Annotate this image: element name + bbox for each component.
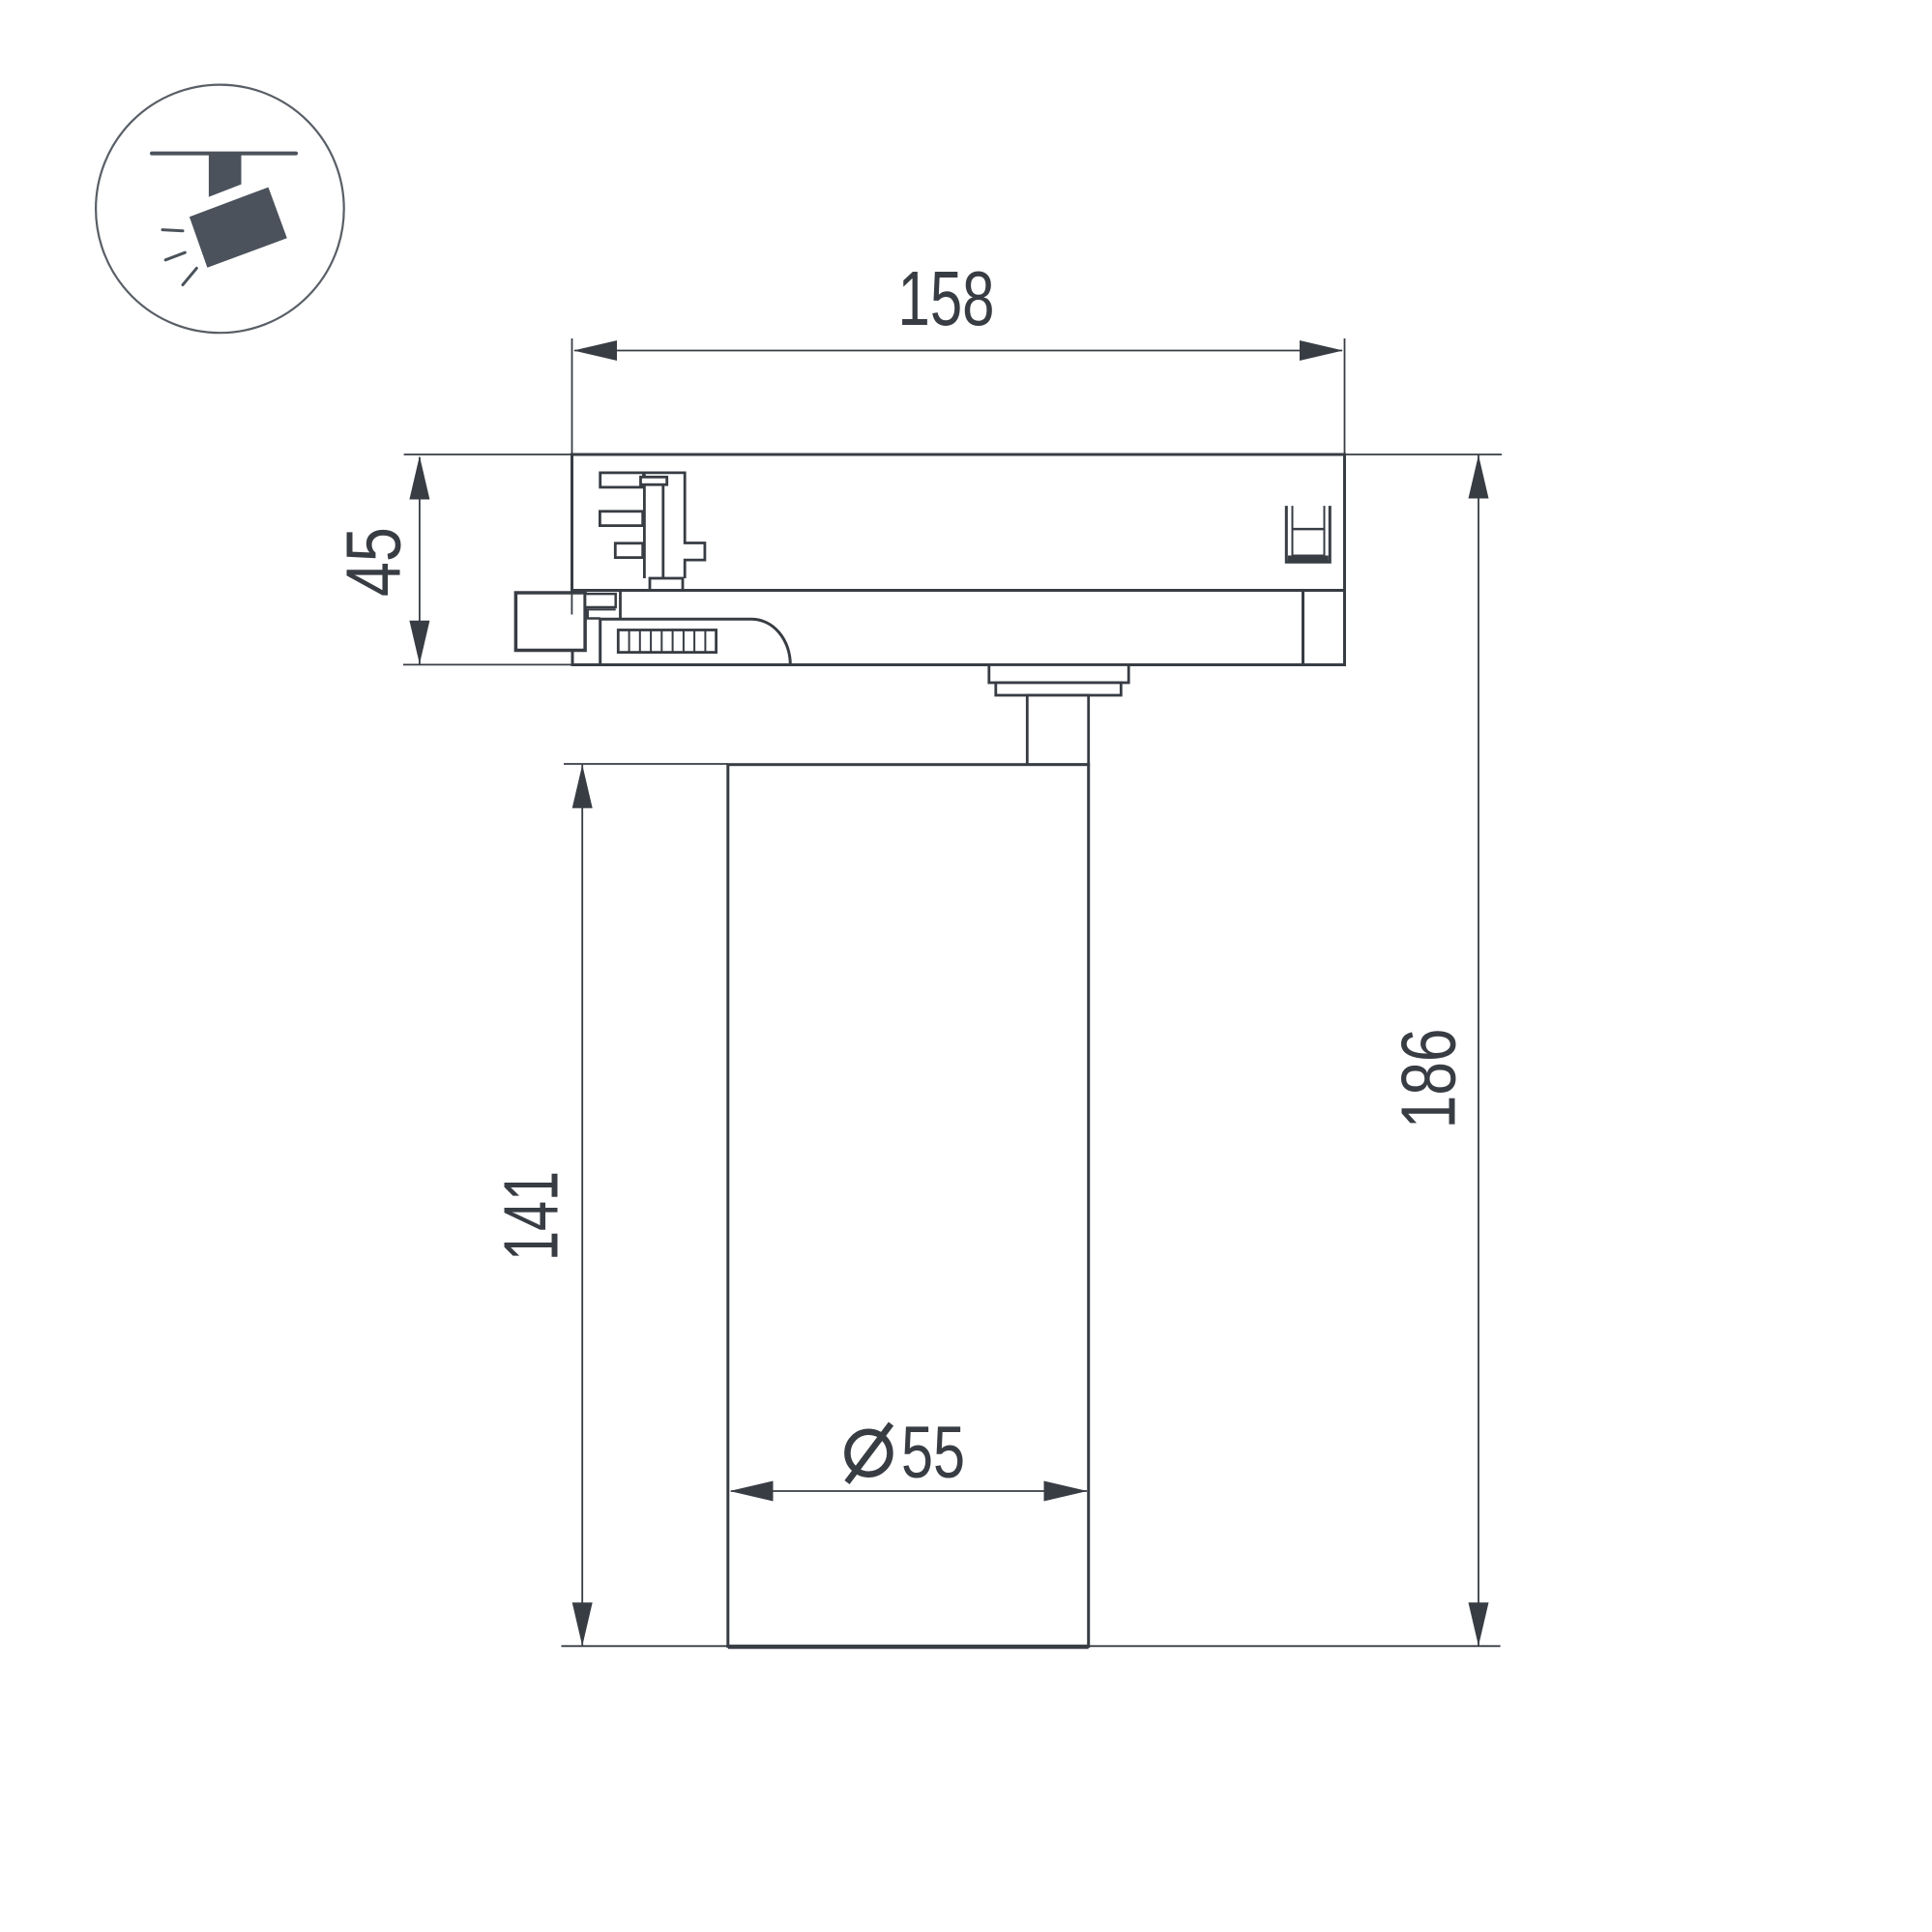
svg-text:45: 45 <box>331 527 417 597</box>
svg-text:158: 158 <box>898 255 995 341</box>
svg-text:55: 55 <box>901 1412 965 1494</box>
svg-text:186: 186 <box>1386 1028 1472 1128</box>
svg-text:141: 141 <box>487 1171 573 1261</box>
